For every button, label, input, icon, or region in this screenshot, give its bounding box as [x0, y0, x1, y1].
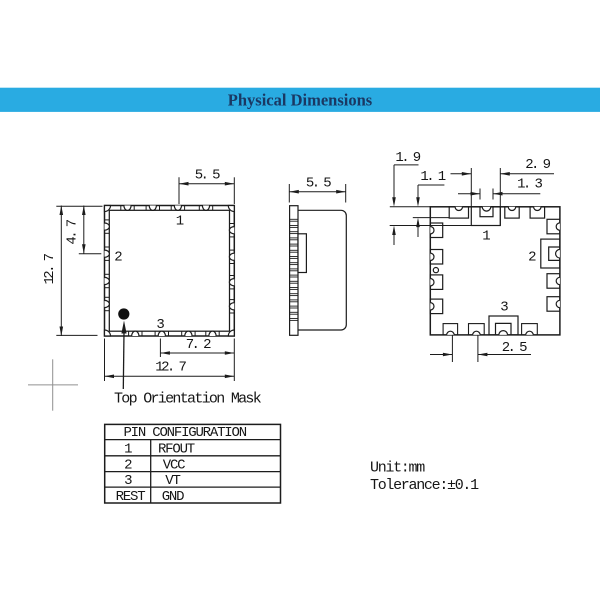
svg-text:4. 7: 4. 7 — [65, 219, 81, 244]
svg-text:7. 2: 7. 2 — [186, 337, 211, 353]
svg-text:VT: VT — [165, 473, 180, 489]
svg-text:2. 9: 2. 9 — [525, 157, 550, 173]
svg-text:1: 1 — [124, 442, 132, 458]
svg-text:Top Orientation Mask: Top Orientation Mask — [114, 391, 262, 408]
svg-text:3: 3 — [124, 473, 132, 489]
svg-text:PIN CONFIGURATION: PIN CONFIGURATION — [123, 425, 246, 441]
svg-text:1. 1: 1. 1 — [420, 169, 445, 185]
svg-text:1. 3: 1. 3 — [517, 177, 542, 193]
svg-text:12. 7: 12. 7 — [155, 360, 186, 376]
svg-text:GND: GND — [162, 489, 184, 505]
svg-text:1. 9: 1. 9 — [395, 150, 420, 166]
svg-text:12. 7: 12. 7 — [42, 253, 58, 284]
svg-text:Tolerance:±0.1: Tolerance:±0.1 — [370, 477, 479, 494]
svg-text:Physical Dimensions: Physical Dimensions — [228, 90, 373, 109]
svg-text:VCC: VCC — [163, 457, 185, 473]
svg-text:REST: REST — [116, 489, 146, 505]
svg-text:Unit:mm: Unit:mm — [370, 460, 425, 477]
svg-text:5. 5: 5. 5 — [195, 168, 220, 184]
svg-text:2: 2 — [124, 457, 132, 473]
svg-text:RFOUT: RFOUT — [158, 442, 195, 458]
svg-text:5. 5: 5. 5 — [306, 175, 331, 191]
svg-text:2. 5: 2. 5 — [502, 340, 527, 356]
